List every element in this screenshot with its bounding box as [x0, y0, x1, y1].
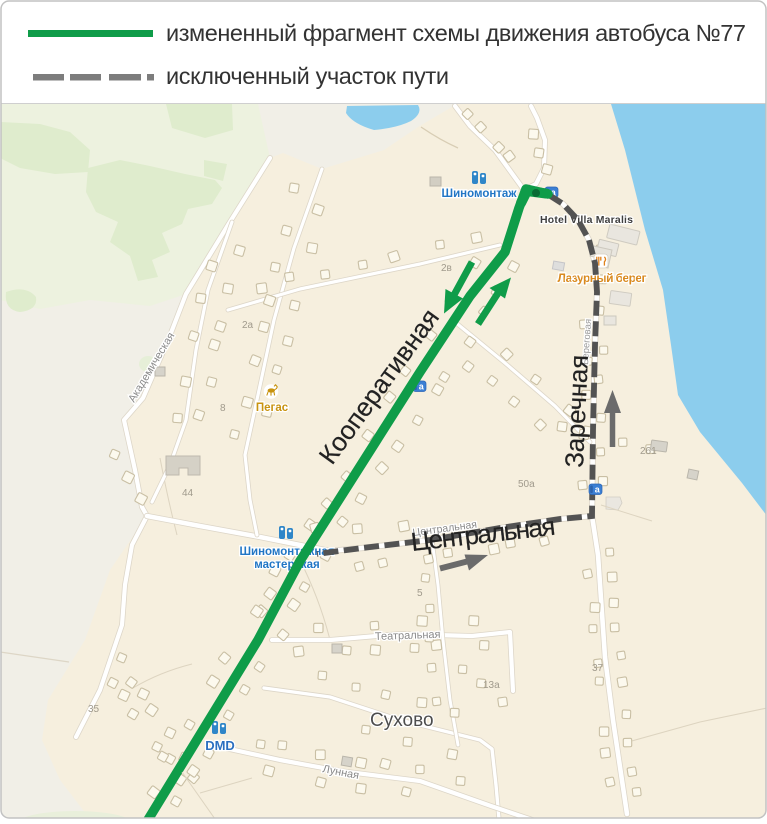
svg-text:Лазурный берег: Лазурный берег	[558, 271, 647, 285]
svg-text:Пегас: Пегас	[256, 402, 289, 414]
svg-text:8: 8	[220, 403, 226, 414]
svg-text:5: 5	[417, 588, 423, 599]
svg-text:13а: 13а	[483, 680, 500, 691]
svg-text:Заречная: Заречная	[559, 354, 594, 468]
svg-text:Шиномонтажная: Шиномонтажная	[239, 546, 334, 558]
svg-text:Hotel Villa Maralis: Hotel Villa Maralis	[540, 214, 633, 226]
svg-text:измененный фрагмент схемы движ: измененный фрагмент схемы движения автоб…	[166, 20, 746, 46]
svg-text:исключенный участок пути: исключенный участок пути	[166, 63, 449, 89]
svg-text:мастерская: мастерская	[254, 559, 319, 571]
svg-text:261: 261	[640, 446, 657, 457]
svg-text:44: 44	[182, 488, 194, 499]
svg-text:37: 37	[592, 663, 604, 674]
svg-text:Шиномонтаж: Шиномонтаж	[442, 188, 518, 200]
svg-text:2в: 2в	[441, 263, 452, 274]
svg-text:DMD: DMD	[205, 738, 235, 753]
svg-text:Сухово: Сухово	[370, 710, 434, 731]
svg-text:35: 35	[88, 704, 100, 715]
svg-text:Театральная: Театральная	[375, 629, 441, 643]
svg-text:2а: 2а	[242, 320, 254, 331]
svg-text:50а: 50а	[518, 479, 535, 490]
